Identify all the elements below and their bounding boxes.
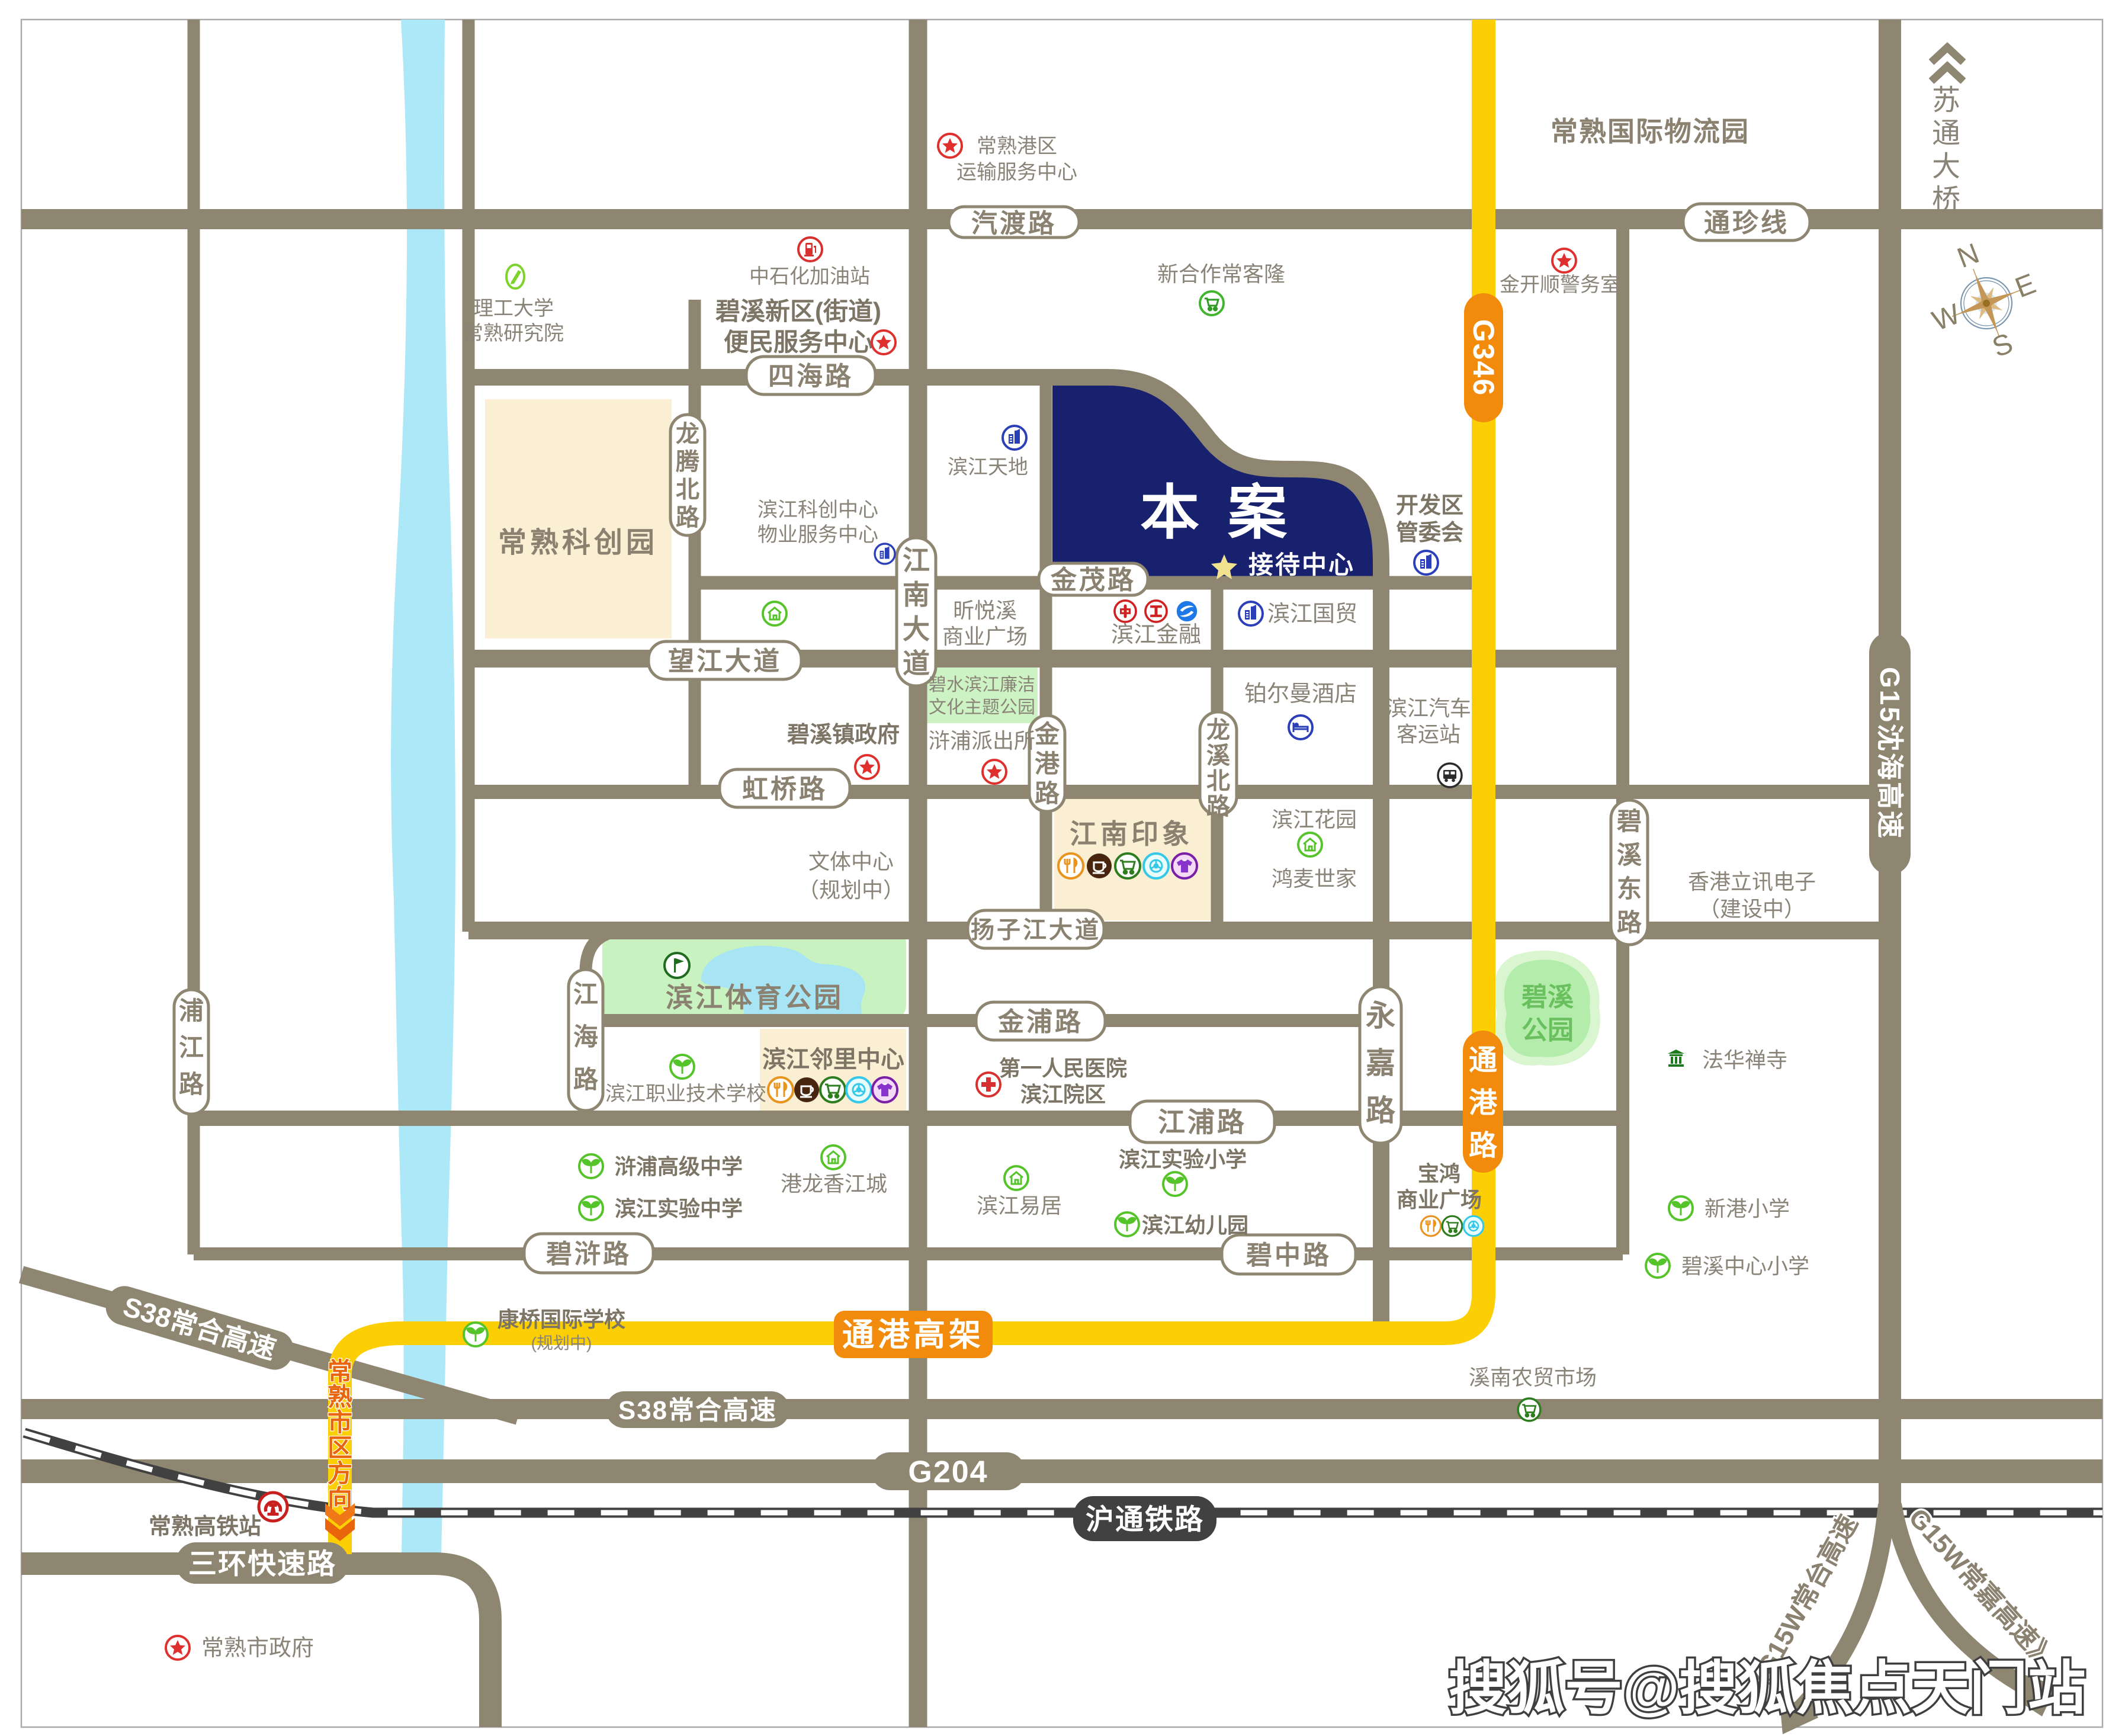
svg-text:新合作常客隆: 新合作常客隆 (1157, 262, 1285, 286)
svg-text:浒浦派出所: 浒浦派出所 (929, 729, 1035, 753)
svg-text:金开顺警务室: 金开顺警务室 (1500, 274, 1620, 296)
svg-text:常熟科创园: 常熟科创园 (498, 527, 658, 559)
svg-text:虹桥路: 虹桥路 (742, 775, 827, 804)
svg-text:江浦路: 江浦路 (1158, 1107, 1247, 1138)
svg-text:滨江易居: 滨江易居 (977, 1193, 1062, 1218)
svg-text:G204: G204 (908, 1455, 988, 1490)
svg-text:滨江天地: 滨江天地 (948, 456, 1028, 479)
svg-text:龙溪北路: 龙溪北路 (1206, 717, 1231, 820)
svg-text:滨江幼儿园: 滨江幼儿园 (1142, 1213, 1248, 1237)
svg-text:金茂路: 金茂路 (1050, 566, 1136, 595)
svg-text:碧溪镇政府: 碧溪镇政府 (787, 722, 900, 747)
svg-text:碧浒路: 碧浒路 (546, 1240, 631, 1269)
svg-text:滨江金融: 滨江金融 (1111, 622, 1201, 647)
svg-text:接待中心: 接待中心 (1248, 551, 1355, 579)
svg-text:通珍线: 通珍线 (1704, 208, 1789, 238)
svg-text:搜狐号@搜狐焦点天门站: 搜狐号@搜狐焦点天门站 (1449, 1655, 2086, 1721)
svg-text:江南印象: 江南印象 (1070, 819, 1193, 849)
svg-text:铂尔曼酒店: 铂尔曼酒店 (1244, 682, 1357, 707)
svg-text:常熟国际物流园: 常熟国际物流园 (1551, 116, 1750, 147)
svg-text:G15沈海高速: G15沈海高速 (1874, 667, 1905, 840)
svg-text:滨江花园: 滨江花园 (1272, 807, 1357, 832)
svg-text:常熟市区方向: 常熟市区方向 (328, 1358, 352, 1513)
svg-text:金港路: 金港路 (1034, 720, 1060, 807)
svg-text:通港高架: 通港高架 (842, 1317, 984, 1353)
svg-text:永嘉路: 永嘉路 (1366, 999, 1396, 1127)
svg-text:四海路: 四海路 (768, 362, 853, 391)
svg-text:G346: G346 (1467, 319, 1500, 396)
svg-text:滨江实验中学: 滨江实验中学 (615, 1196, 743, 1221)
svg-text:沪通铁路: 沪通铁路 (1086, 1504, 1204, 1535)
svg-text:鸿麦世家: 鸿麦世家 (1272, 867, 1357, 891)
svg-text:汽渡路: 汽渡路 (971, 209, 1057, 238)
svg-text:扬子江大道: 扬子江大道 (971, 917, 1101, 943)
svg-text:滨江体育公园: 滨江体育公园 (666, 982, 843, 1013)
svg-text:本 案: 本 案 (1140, 480, 1293, 546)
svg-text:碧中路: 碧中路 (1246, 1241, 1331, 1270)
svg-text:金浦路: 金浦路 (997, 1007, 1083, 1037)
svg-text:江海路: 江海路 (573, 980, 599, 1093)
svg-text:滨江国贸: 滨江国贸 (1267, 602, 1357, 627)
svg-text:溪南农贸市场: 溪南农贸市场 (1469, 1365, 1597, 1390)
svg-text:望江大道: 望江大道 (668, 647, 782, 676)
svg-text:康桥国际学校: 康桥国际学校 (497, 1307, 625, 1331)
svg-text:新港小学: 新港小学 (1704, 1196, 1790, 1221)
svg-text:通港路: 通港路 (1469, 1045, 1498, 1161)
svg-text:滨江职业技术学校: 滨江职业技术学校 (605, 1083, 766, 1105)
svg-text:常熟高铁站: 常熟高铁站 (149, 1514, 261, 1539)
svg-text:碧溪中心小学: 碧溪中心小学 (1681, 1254, 1809, 1278)
svg-text:S38常合高速: S38常合高速 (618, 1396, 777, 1425)
svg-text:滨江邻里中心: 滨江邻里中心 (762, 1047, 904, 1073)
svg-text:浒浦高级中学: 浒浦高级中学 (615, 1154, 743, 1179)
svg-text:滨江实验小学: 滨江实验小学 (1119, 1147, 1247, 1172)
svg-text:港龙香江城: 港龙香江城 (781, 1172, 887, 1196)
svg-text:中石化加油站: 中石化加油站 (749, 265, 870, 288)
svg-text:浦江路: 浦江路 (179, 997, 204, 1098)
svg-text:法华禅寺: 法华禅寺 (1702, 1048, 1787, 1072)
svg-text:三环快速路: 三环快速路 (188, 1548, 336, 1580)
svg-text:(规划中): (规划中) (531, 1334, 592, 1352)
svg-text:常熟市政府: 常熟市政府 (201, 1636, 314, 1661)
